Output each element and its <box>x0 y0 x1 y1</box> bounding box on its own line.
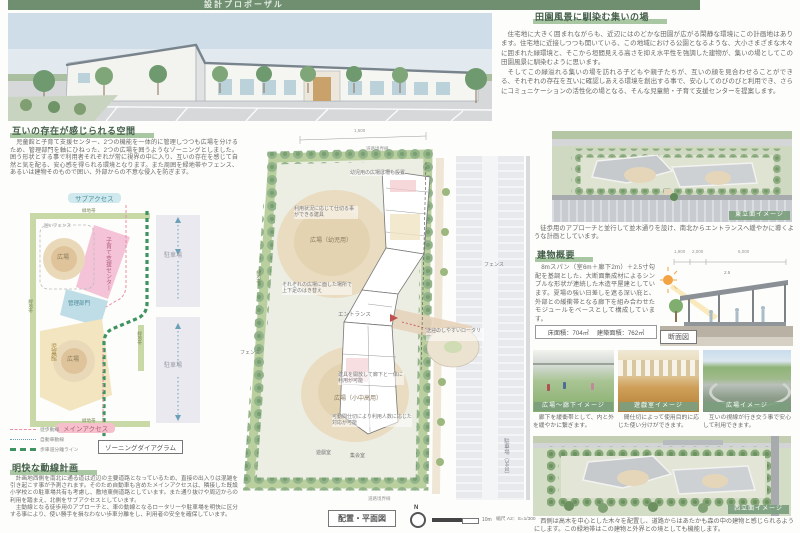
jidokan-label: 児童館 <box>48 343 56 373</box>
person-figure <box>547 384 550 391</box>
aerial-west-caption: 西側は高木を中心とした木々を配置し、道路からはあたかも森の中の建物と感じられるよ… <box>534 518 794 533</box>
photo-playroom-tag: 遊戯室イメージ <box>619 402 698 411</box>
ann-movable: 可動間仕切により利用人数に応じた対応が可能 <box>332 414 412 427</box>
admin-label: 管理部門 <box>68 301 90 308</box>
presentation-board: 設計プロポーザル <box>0 0 800 533</box>
support-center-label: 子育て支援センター <box>103 237 111 299</box>
area-box: 床面積：704㎡ 建築面積：762㎡ <box>535 325 657 339</box>
section-caption: 断面図 <box>660 330 697 344</box>
boundary-label-top: 道路境界線 <box>366 146 389 152</box>
zoning-graphic <box>6 199 236 449</box>
ann-fence-top: 幼児用の広場は柵も設置 <box>350 170 405 176</box>
north-road <box>663 440 723 445</box>
window-band <box>618 360 699 376</box>
aerial-east-caption: 徒歩用のアプローチと並行して並木通りを設け、南北からエントランスへ緩やかに導くよ… <box>534 225 794 241</box>
fence-note-label: 囲いフェンス <box>44 223 71 229</box>
plan-caption: 配置・平面図 <box>328 510 396 527</box>
legend-row-car: 自動車動線 <box>10 436 78 443</box>
roof-slab <box>680 280 788 301</box>
scale-label: 縮尺 A2：S=1/300 <box>496 517 536 523</box>
person-figure <box>591 383 594 390</box>
scale-bar-dark <box>432 518 462 522</box>
section-heading-mutual: 互いの存在が感じられる空間 <box>10 124 154 137</box>
slope-label: 2.5 <box>724 270 730 276</box>
aerial-east-rendering: 東立面イメージ <box>552 131 792 222</box>
aerial-east-tag: 東立面イメージ <box>729 211 790 220</box>
ann-partition: 利用状況に応じて仕切る事ができる建具 <box>294 206 358 219</box>
canopy <box>533 350 614 365</box>
photo-plaza-tag: 広場イメージ <box>704 402 790 411</box>
section-heading-circulation: 明快な動線計画 <box>10 461 97 474</box>
exterior-rendering <box>8 13 492 121</box>
boundary-label-bottom: 道路境界線 <box>368 496 391 502</box>
site-plan: 1,500 道路境界線 幼児用の広場は柵も設置 利用状況に応じて仕切る事ができる… <box>240 122 540 533</box>
parking-aisle <box>482 156 498 500</box>
east-road <box>526 156 530 500</box>
aerial-west-tag: 西立面イメージ <box>728 505 789 514</box>
site-plan-graphic <box>240 122 530 507</box>
entrance-label: エントランス <box>338 312 371 319</box>
sun-icon <box>663 275 673 285</box>
person-figure <box>563 382 566 389</box>
dimension-line <box>300 136 426 140</box>
pedestrian-line-sample <box>10 429 36 430</box>
aerial-east-graphic <box>552 131 792 222</box>
building-body: 8mスパン（室6m＋廊下2m）＋2.5寸勾配を基調とした、大断面集成材によるシン… <box>535 264 655 325</box>
dim-top-label: 1,500 <box>354 128 365 134</box>
aerial-west-graphic <box>533 436 791 516</box>
ann-open: 建具を開放して廊下と一体に利用が可能 <box>338 372 404 385</box>
rural-paragraph-1: 住宅地に大きく囲まれながらも、近辺にはのどかな田園が広がる閑静な環境にこの計画地… <box>501 30 793 68</box>
room-play-label: 遊戯室 <box>316 450 331 456</box>
building-area: 建築面積：762㎡ <box>597 328 644 337</box>
greenbelt-label-mid: 緑地帯 <box>137 331 143 345</box>
dim-6000: 6,000 <box>738 249 749 255</box>
east-road <box>771 436 779 516</box>
board-title: 設計プロポーザル <box>204 0 284 10</box>
parking-label-2: 駐車場 <box>164 363 182 371</box>
dim-2000: 2,000 <box>692 249 703 255</box>
greenbelt-label-left: 緑地帯 <box>28 299 34 313</box>
plaza-label-1: 広場 <box>57 255 69 263</box>
rotary-label: 送迎のしやすいロータリー <box>426 328 484 341</box>
photo-playroom: 遊戯室イメージ <box>618 350 699 412</box>
tree-icon <box>669 299 683 313</box>
separation-line-sample <box>10 448 36 451</box>
legend-row-separation: 歩車道分離ライン <box>10 446 78 453</box>
floor-slab <box>684 322 786 326</box>
ann-shoes: それぞれの広場に面した場所で上下足のはき替え <box>282 282 352 295</box>
north-arrow-icon <box>410 512 426 528</box>
title-banner: 設計プロポーザル <box>8 0 700 10</box>
section-heading-building: 建物概要 <box>535 248 593 261</box>
legend-row-pedestrian: 徒歩動線 <box>10 426 78 433</box>
photo-plaza: 広場イメージ <box>703 350 791 412</box>
mutual-body: 児童館と子育て支援センター、2つの機能を一体的に管理しつつも広場を分けるため、管… <box>10 139 238 177</box>
scale-length-label: 10m <box>482 517 492 523</box>
room-meeting-label: 集会室 <box>350 453 365 459</box>
photo-corridor-tag: 広場～廊下イメージ <box>534 402 613 411</box>
section-heading-rural: 田園風景に馴染む集いの場 <box>533 10 667 23</box>
scale-bar-light <box>462 518 479 524</box>
rural-body: 住宅地に大きく囲まれながらも、近辺にはのどかな田園が広がる閑静な環境にこの計画地… <box>501 30 793 96</box>
photo-corridor: 広場～廊下イメージ <box>533 350 614 412</box>
human-figures <box>709 306 765 322</box>
aerial-west-rendering: 西立面イメージ <box>533 436 791 516</box>
plaza-elder-label: 広場（小中高用） <box>334 396 382 404</box>
plaza-infant-label: 広場（幼児用） <box>310 238 352 246</box>
exterior-rendering-graphic <box>8 13 492 121</box>
parking-count-label: 駐車場（34台） <box>502 438 509 492</box>
floor-area: 床面積：704㎡ <box>548 328 589 337</box>
car-line-sample <box>10 439 36 440</box>
photo-corridor-caption: 廊下を緩衝帯として、内と外を緩やかに繋ぎます。 <box>533 415 614 430</box>
rural-paragraph-2: そしてこの緑溢れる集いの場を訪れる子どもや親子たちが、互いの顔を見合わせることが… <box>501 68 793 96</box>
parking-label-1: 駐車場 <box>164 253 182 261</box>
greenbelt-label-top: 緑地帯 <box>82 208 96 214</box>
north-letter: N <box>414 505 418 511</box>
plaza-label-2: 広場 <box>67 357 79 365</box>
plan-greenbelt-label: 緑地帯 <box>256 270 262 284</box>
zoning-legend: 徒歩動線 自動車動線 歩車道分離ライン <box>10 426 78 453</box>
photo-plaza-caption: 互いの視線が行き交う事で安心して利用できます。 <box>703 415 791 430</box>
fence-label-left: フェンス <box>240 350 260 356</box>
section-diagram: 1,900 2,000 6,000 2.5 断面図 <box>660 252 793 346</box>
circulation-body: 計画地西側を南北に通る道は近辺の主要道路となっているため、直接の出入りは混雑を引… <box>10 476 238 519</box>
fence-label-right: フェンス <box>484 262 504 268</box>
zoning-diagram: サブアクセス 緑地帯 緑地帯 緑地帯 緑地帯 囲いフェンス 子育て支援センター … <box>6 195 238 453</box>
sub-access-label: サブアクセス <box>68 193 121 203</box>
zoning-caption: ゾーニングダイアグラム <box>98 440 183 454</box>
dim-1900: 1,900 <box>674 249 685 255</box>
photo-playroom-caption: 間仕切によって使用目的に応じた使い分けができます。 <box>618 415 699 430</box>
